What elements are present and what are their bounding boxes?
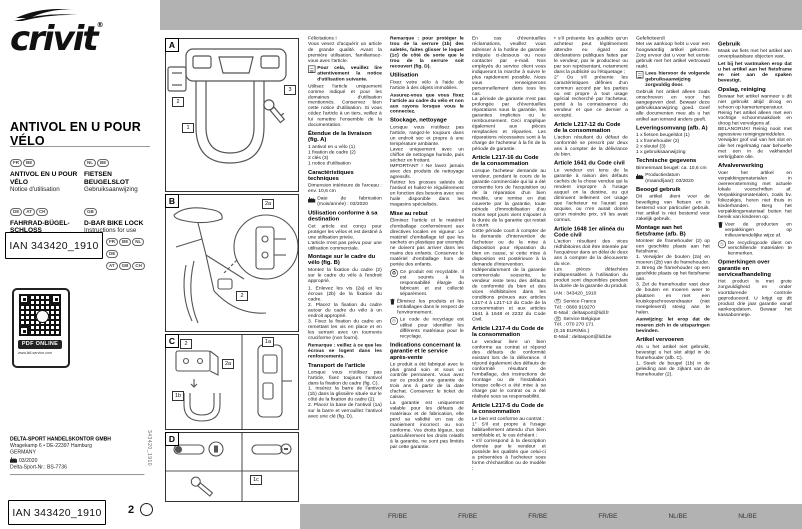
section-heading: Article L217-4 du Code de la consommatio… — [472, 325, 546, 337]
paragraph: Remarque : veillez à ce que les écrous s… — [308, 343, 382, 360]
icon-paragraph: Pour cela, veuillez lire attentivement l… — [308, 65, 382, 82]
paragraph: Montez la fixation du cadre (2) sur le c… — [308, 267, 382, 284]
qr-code-block: PDF ONLINE www.lidl-service.com — [12, 288, 70, 368]
part-label-2a: 2a — [262, 199, 274, 209]
paragraph: Maak uw fiets met het artikel aan onverp… — [718, 48, 792, 59]
panel-letter-a: A — [165, 38, 179, 52]
paragraph: Het product is met grote zorgvuldigheid … — [718, 279, 792, 318]
region-page-label: FR/BE — [598, 513, 617, 520]
service-contact-line: E-Mail : deltasport@lidl.be — [554, 333, 628, 339]
panel-letter-c: C — [165, 334, 179, 348]
flag-pill-at: AT — [23, 208, 35, 216]
section-heading: Technische gegevens — [636, 158, 710, 164]
icon-paragraph: ♻Ce produit est recyclable. Il est soumi… — [390, 269, 464, 297]
product-subtitle: Gebruiksaanwijzing — [84, 186, 158, 193]
paragraph: • s'il présente les qualités qu'un achet… — [554, 36, 628, 119]
paragraph: Aanwijzing: let erop dat de moeren zich … — [636, 317, 710, 334]
part-label-1a: 1a — [262, 337, 274, 347]
flag-pill-gb: GB — [84, 208, 97, 216]
section-heading: Étendue de la livraison (fig. A) — [308, 131, 382, 143]
flag-pill-ch: CH — [36, 208, 49, 216]
icon-paragraph: Lees hiervoor de volgende gebruiksaanwij… — [636, 71, 710, 88]
section-heading: Utilisation conforme à sa destination — [308, 210, 382, 222]
section-heading: Article 1648 1er alinéa du Code civil — [554, 226, 628, 238]
paragraph: Productiedatum (maand/jaar): 03/2020 — [645, 173, 710, 184]
paragraph: Fixez votre vélo à l'aide de l'article à… — [390, 79, 464, 90]
paragraph: Le vendeur est tenu de la garantie à rai… — [554, 168, 628, 223]
section-heading: Afvalverwerking — [718, 163, 792, 169]
product-name: D-BAR BIKE LOCK — [84, 220, 158, 228]
paragraph: Lorsque l'acheteur demande au vendeur, p… — [472, 168, 546, 322]
qr-center-logo — [36, 310, 49, 323]
flag-pill-at: AT — [106, 262, 118, 270]
factory-icon — [10, 457, 17, 463]
divider — [10, 474, 144, 475]
region-page-label: NL/BE — [668, 513, 687, 520]
part-label-1: 1 — [182, 123, 194, 133]
footer-region-bar: FR/BEFR/BEFR/BEFR/BENL/BENL/BE — [300, 504, 802, 529]
paragraph: Let bij het vastmaken erop dat u het art… — [718, 61, 792, 83]
section-heading: Leveringsomvang (afb. A) — [636, 125, 710, 131]
text-column-6: GebruikMaak uw fiets met het artikel aan… — [718, 36, 794, 504]
icon-paragraph: Voer de producten en verpakkingen op mil… — [718, 222, 792, 239]
product-name: FIETSEN BEUGELSLOT — [84, 171, 158, 186]
paragraph: Binnenmaat beugel: ca. 10,6 cm — [636, 165, 710, 171]
part-label-2: 2 — [236, 291, 248, 301]
product-subtitle: Notice d'utilisation — [10, 186, 82, 193]
region-page-label: NL/BE — [738, 513, 757, 520]
paragraph: 1. Enlevez les vis (2a) et les écrous (2… — [308, 286, 382, 341]
region-page-label: FR/BE — [458, 513, 477, 520]
page-indicator-circle-icon — [140, 503, 153, 516]
flag-pill-be: BE — [119, 238, 131, 246]
section-heading: Article L217-5 du Code de la consommatio… — [472, 403, 546, 415]
icon-paragraph: Éliminez les produits et les emballages … — [390, 299, 464, 316]
bike-frame-drawing — [166, 195, 298, 331]
book-icon — [636, 71, 643, 78]
section-heading: Montage sur le cadre du vélo (fig. B) — [308, 254, 382, 266]
diagram-panel-b: B 2a2 — [165, 194, 299, 332]
paragraph: 1 antivol en u vélo (1) 1 fixation de ca… — [308, 144, 382, 166]
section-heading: Article L217-16 du Code de la consommati… — [472, 155, 546, 167]
country-flag-pills: FRBENLDEATGBCH — [106, 234, 156, 270]
part-label-1b: 1b — [172, 391, 184, 401]
paragraph: Félicitations ! Vous venez d'acquérir un… — [308, 36, 382, 64]
paragraph: Lees hiervoor de volgende gebruiksaanwij… — [645, 71, 710, 88]
article-ref: Delta-Sport-Nr.: BS-7736 — [10, 464, 154, 470]
pdf-online-badge: PDF ONLINE — [18, 340, 62, 349]
lang-block-1: NLBEFIETSEN BEUGELSLOTGebruiksaanwijzing — [84, 151, 158, 194]
top-margin-band — [160, 0, 802, 30]
factory-icon — [308, 197, 315, 203]
qr-finder-icon — [51, 294, 61, 304]
paragraph: Le code de recyclage est utilisé pour id… — [400, 317, 464, 339]
paragraph: Le vendeur livre un bien conforme au con… — [472, 339, 546, 400]
circ-recycle-icon: ♻ — [390, 269, 398, 277]
tri-recycle-icon: ♲ — [718, 240, 726, 248]
section-heading: Beoogd gebruik — [636, 187, 710, 193]
section-heading: Indications concernant la garantie et le… — [390, 342, 464, 360]
paragraph: Date de fabrication (mois/année) : 03/20… — [317, 196, 382, 207]
section-heading: Utilisation — [390, 72, 464, 78]
paragraph: Monteer de framehouder (2) op een geschi… — [636, 238, 710, 315]
paragraph: Ce produit est recyclable. Il est soumis… — [400, 269, 464, 297]
diagram-panel-c: C 22a1b1a — [165, 334, 299, 430]
panel-letter-d: D — [165, 432, 179, 446]
section-heading: Article L217-12 du Code de la consommati… — [554, 122, 628, 134]
section-heading: Mise au rebut — [390, 210, 464, 216]
qr-finder-icon — [19, 294, 29, 304]
flag-pill-be: BE — [554, 316, 561, 320]
paragraph: De recyclingcode dient om verschillende … — [728, 240, 792, 257]
vertical-print-code: 343420_1910 — [146, 430, 152, 466]
panel-letter-b: B — [165, 194, 179, 208]
u-lock-drawing — [166, 39, 298, 191]
paragraph: Remarque : pour protéger le trou de la s… — [390, 36, 464, 69]
section-heading: Opmerkingen over garantie en serviceafha… — [718, 260, 792, 278]
icon-paragraph: Productiedatum (maand/jaar): 03/2020 — [636, 173, 710, 184]
paragraph: L'action résultant du défaut de conformi… — [554, 135, 628, 157]
paragraph: Voer de producten en verpakkingen op mil… — [725, 222, 792, 239]
flag-pill-fr: FR — [106, 238, 118, 246]
paragraph: Bewaar het artikel wanneer u dit niet ge… — [718, 94, 792, 160]
icon-paragraph: ♲De recyclingcode dient om verschillende… — [718, 240, 792, 257]
section-heading: Montage aan het fietsframe (afb. B) — [636, 225, 710, 237]
paragraph: Als u het artikel niet gebruikt, bevesti… — [636, 344, 710, 377]
paragraph: Pour cela, veuillez lire attentivement l… — [317, 65, 382, 82]
qr-finder-icon — [19, 326, 29, 336]
divider — [10, 146, 150, 147]
page-number: 2 — [128, 504, 134, 516]
section-heading: Artikel vervoeren — [636, 337, 710, 343]
logo-swoosh-icon — [12, 4, 122, 22]
section-heading: Caractéristiques techniques — [308, 169, 382, 181]
flag-pill-ch: CH — [132, 262, 145, 270]
frame-holder-drawing — [166, 335, 298, 429]
page-title: ANTIVOL EN U POUR VÉLO — [10, 120, 156, 148]
text-column-2: Remarque : pour protéger le trou de la s… — [390, 36, 466, 504]
language-blocks: FRBEANTIVOL EN U POUR VÉLONotice d'utili… — [10, 151, 156, 242]
paragraph: 1 x fietsen beugelslot (1) 1 x framehoud… — [636, 133, 710, 155]
manufacturer-country: GERMANY — [10, 449, 154, 455]
paragraph: Le bien est conforme au contrat : 1° S'i… — [472, 416, 546, 471]
paragraph: En cas d'éventuelles réclamations, veuil… — [472, 36, 546, 152]
text-column-4: • s'il présente les qualités qu'un achet… — [554, 36, 630, 504]
service-url: www.lidl-service.com — [18, 351, 62, 355]
paragraph: Éliminez les produits et les emballages … — [397, 299, 464, 316]
trash-icon — [390, 299, 395, 305]
tri-recycle-icon: ♲ — [390, 317, 398, 325]
paragraph: Lorsque vous n'utilisez pas l'article, r… — [390, 125, 464, 208]
diagram-panel-a: A 213 — [165, 38, 299, 192]
manufacturer-block: DELTA-SPORT HANDELSKONTOR GMBH Wragekamp… — [10, 436, 154, 475]
factory-icon — [636, 174, 643, 180]
paragraph: Cet article est conçu pour protéger les … — [308, 223, 382, 251]
book-icon — [308, 65, 315, 72]
production-date-line: 03/2020 — [10, 457, 154, 464]
part-label-1c: 1c — [250, 475, 262, 485]
flag-pill-nl: NL — [84, 159, 96, 167]
section-heading: Article 1641 du Code civil — [554, 160, 628, 166]
paragraph: Assurez-vous que vous fixez l'article au… — [390, 92, 464, 114]
part-label-3: 3 — [284, 85, 296, 95]
section-heading: Opslag, reiniging — [718, 86, 792, 92]
icon-paragraph: ♲Le code de recyclage est utilisé pour i… — [390, 317, 464, 339]
crivit-logo: crivit® — [10, 8, 130, 66]
part-label-2: 2 — [180, 339, 192, 349]
lock-cylinder-drawing — [166, 433, 298, 501]
paragraph: Utilisez l'article uniquement comme indi… — [308, 84, 382, 128]
flag-pill-nl: NL — [132, 238, 144, 246]
ian-code-box: IAN 343420_1910 — [5, 232, 103, 259]
cover-panel: crivit® ANTIVOL EN U POUR VÉLO FRBEANTIV… — [0, 0, 158, 529]
flag-pill-be: BE — [97, 159, 109, 167]
paragraph: Éliminez l'article et le matériel d'emba… — [390, 218, 464, 268]
paragraph: IAN : 343420_1910 — [554, 291, 628, 297]
product-name: ANTIVOL EN U POUR VÉLO — [10, 171, 82, 186]
text-column-1: Félicitations ! Vous venez d'acquérir un… — [308, 36, 384, 504]
icon-paragraph: Date de fabrication (mois/année) : 03/20… — [308, 196, 382, 207]
paragraph: Dimension intérieure de l'arceau : env. … — [308, 183, 382, 194]
region-page-label: FR/BE — [388, 513, 407, 520]
part-label-2a: 2a — [222, 359, 234, 369]
flag-pill-de: DE — [106, 250, 118, 258]
region-page-label: FR/BE — [528, 513, 547, 520]
diagram-panel-d: D 1c — [165, 432, 299, 502]
ian-code-box-footer: IAN 343420_1910 — [8, 500, 106, 525]
paragraph: Le produit a été fabriqué avec le plus g… — [390, 362, 464, 450]
section-heading: Gebruik — [718, 41, 792, 47]
section-heading: Transport de l'article — [308, 362, 382, 368]
flag-pill-gb: GB — [119, 262, 132, 270]
paragraph: Voer het artikel en verpakkingsmateriale… — [718, 170, 792, 220]
flag-pill-fr: FR — [10, 159, 22, 167]
text-column-5: Gefeliciteerd! Met uw aankoop hebt u voo… — [636, 36, 712, 504]
brand-wordmark: crivit® — [10, 22, 130, 56]
trash-icon — [718, 222, 723, 228]
flag-pill-de: DE — [10, 208, 22, 216]
paragraph: L'action résultant des vices rédhibitoir… — [554, 239, 628, 289]
flag-pill-fr: FR — [554, 299, 561, 303]
paragraph: Gefeliciteerd! Met uw aankoop hebt u voo… — [636, 36, 710, 69]
part-label-2: 2 — [172, 97, 184, 107]
text-column-3: En cas d'éventuelles réclamations, veuil… — [472, 36, 548, 504]
paragraph: Dit artikel dient voor de beveiliging va… — [636, 194, 710, 222]
section-heading: Stockage, nettoyage — [390, 117, 464, 123]
flag-pill-be: BE — [23, 159, 35, 167]
paragraph: Lorsque vous n'utilisez pas l'article, f… — [308, 370, 382, 420]
lang-block-0: FRBEANTIVOL EN U POUR VÉLONotice d'utili… — [10, 151, 82, 194]
paragraph: Gebruik het artikel alleen zoals omschre… — [636, 89, 710, 122]
